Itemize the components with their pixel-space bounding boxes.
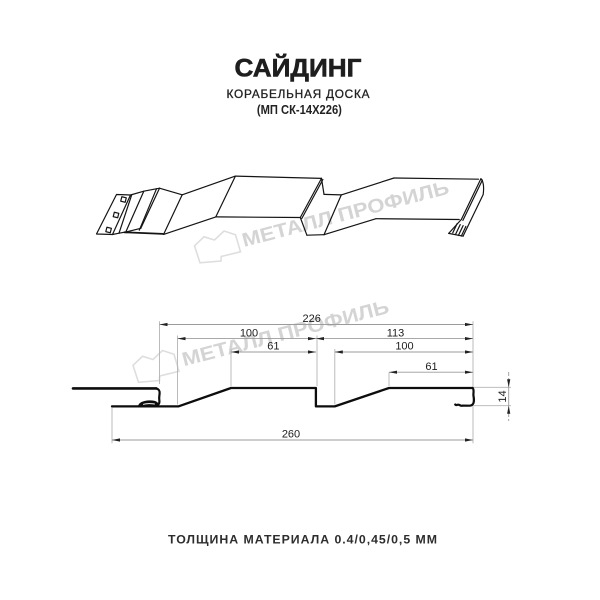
svg-text:МЕТАЛЛ ПРОФИЛЬ: МЕТАЛЛ ПРОФИЛЬ [240,177,452,252]
svg-text:260: 260 [282,429,300,441]
svg-text:113: 113 [387,327,405,339]
svg-text:(МП СК-14Х226): (МП СК-14Х226) [257,103,342,117]
svg-text:КОРАБЕЛЬНАЯ ДОСКА: КОРАБЕЛЬНАЯ ДОСКА [227,87,370,101]
svg-text:61: 61 [267,341,279,353]
svg-text:МЕТАЛЛ ПРОФИЛЬ: МЕТАЛЛ ПРОФИЛЬ [180,296,392,371]
svg-text:ТОЛЩИНА МАТЕРИАЛА 0.4/0,45/0,5: ТОЛЩИНА МАТЕРИАЛА 0.4/0,45/0,5 ММ [168,532,437,546]
svg-text:14: 14 [497,390,509,402]
svg-text:61: 61 [425,361,437,373]
svg-text:226: 226 [303,313,321,325]
svg-text:100: 100 [240,327,258,339]
svg-text:100: 100 [395,341,413,353]
svg-text:САЙДИНГ: САЙДИНГ [235,52,362,82]
